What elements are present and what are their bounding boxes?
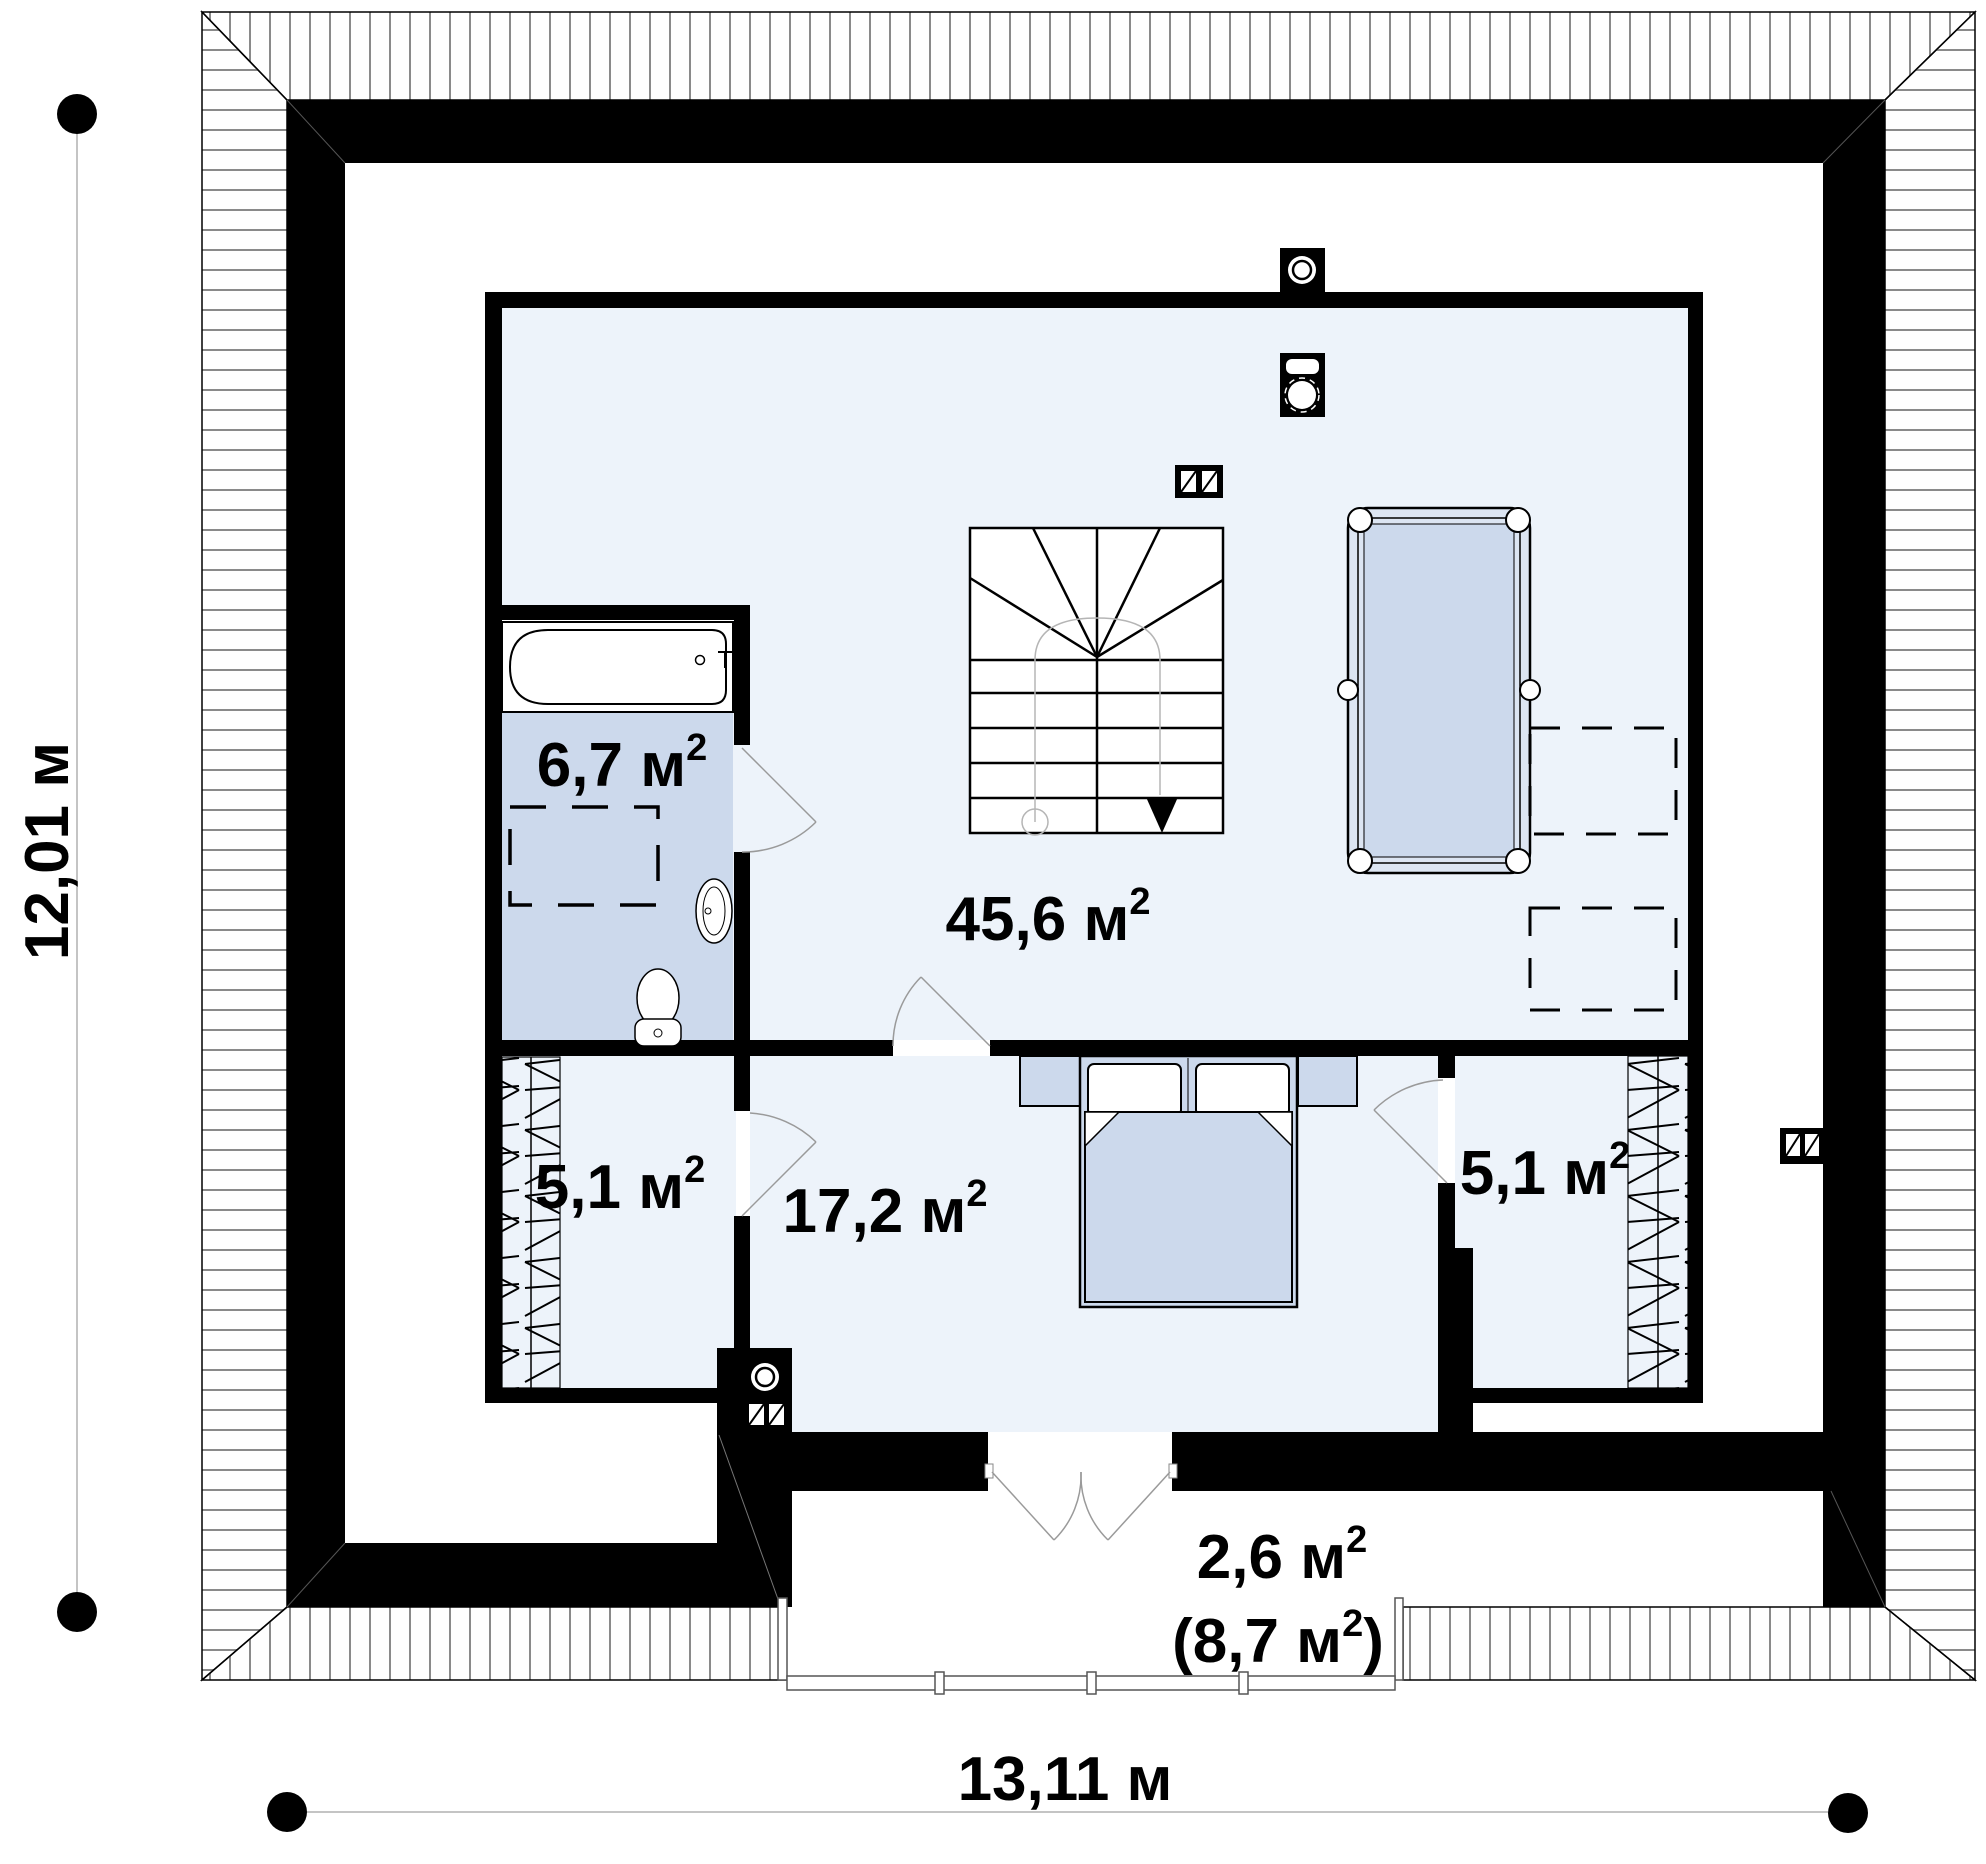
wardrobe-right <box>1628 1056 1688 1388</box>
roof-eave-bottom-right <box>1403 1607 1975 1680</box>
dim-dot-bottom-end <box>1828 1793 1868 1833</box>
bathtub-drain <box>696 656 705 665</box>
label-dim-left: 12,01 м <box>13 742 82 960</box>
bathtub <box>502 622 733 712</box>
label-balcony: 2,6 м2 <box>1197 1519 1367 1592</box>
label-dim-bottom: 13,11 м <box>958 1745 1173 1814</box>
roof-eave-top <box>202 12 1975 100</box>
dim-dot-bottom-left <box>57 1592 97 1632</box>
dim-dot-bottom-start <box>267 1792 307 1832</box>
chimney-block <box>717 1348 792 1607</box>
roof-eave-right <box>1885 12 1975 1680</box>
wardrobe-left <box>502 1057 560 1388</box>
outer-wall-left <box>287 100 345 1607</box>
washbasin <box>696 879 732 943</box>
roof-eave-left <box>202 12 287 1680</box>
label-bedroom: 17,2 м2 <box>783 1173 988 1246</box>
outer-wall-bottom-left <box>287 1543 717 1607</box>
washing-machine-icon <box>1280 353 1325 417</box>
chimney-icon <box>1280 248 1325 293</box>
label-closet-left: 5,1 м2 <box>535 1149 705 1222</box>
outer-wall-bottom-right <box>1461 1432 1831 1491</box>
label-closet-right: 5,1 м2 <box>1460 1135 1630 1208</box>
pillow-right <box>1196 1064 1289 1116</box>
staircase <box>970 528 1223 835</box>
label-bathroom: 6,7 м2 <box>537 727 707 800</box>
pillow-left <box>1088 1064 1181 1116</box>
nightstand-left <box>1020 1056 1080 1106</box>
vent-icon-right-wall <box>1780 1128 1823 1164</box>
toilet <box>635 969 681 1046</box>
vent-icon-hall <box>1175 465 1223 498</box>
nightstand-right <box>1298 1056 1357 1106</box>
blanket <box>1085 1112 1292 1302</box>
roof-eave-bottom-left <box>202 1607 787 1680</box>
outer-wall-right <box>1823 100 1885 1607</box>
label-hall: 45,6 м2 <box>946 881 1151 954</box>
floor-plan-canvas: 6,7 м2 45,6 м2 5,1 м2 17,2 м2 5,1 м2 2,6… <box>0 0 1986 1864</box>
dim-dot-top-left <box>57 94 97 134</box>
pool-table <box>1338 508 1540 873</box>
outer-wall-top <box>287 100 1885 163</box>
floor-plan-page: 6,7 м2 45,6 м2 5,1 м2 17,2 м2 5,1 м2 2,6… <box>0 0 1986 1864</box>
